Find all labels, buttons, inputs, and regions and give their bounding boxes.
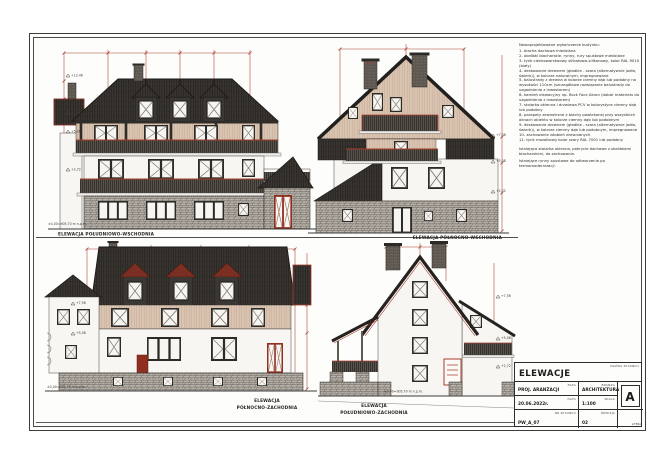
title-block: NAZWA RYSUNKU ELEWACJE FAZA PROJ. ARANŻA…	[514, 362, 642, 427]
finish-notes: Nowoprojektowane wykończenie budynku: 1-…	[519, 43, 641, 169]
date-cell: DATA 20.06.2022r.	[515, 396, 579, 410]
scale-cell: SKALA 1:100	[579, 396, 618, 410]
discipline-cell: BRANŻA ARCHITEKTURA	[579, 382, 618, 396]
nw-dormers	[120, 263, 242, 305]
se-middle-floor	[77, 156, 271, 196]
elevation-nw-label-line1: ELEWACJA	[254, 398, 280, 404]
level-text: +7,56	[76, 301, 86, 305]
ground-level-text: ±0,00=905,70 m n.p.m.	[47, 385, 86, 389]
letter-badge: A	[621, 385, 640, 407]
elevation-nw-drawing: +7,56 +5,08 ±0,00=905,70 m n.p.m. ELEWAC…	[43, 241, 319, 419]
elevation-sw-drawing: +7,56 +5,08 +2,72 ±0,00=905,70 m n.p.m. …	[316, 241, 518, 423]
letter-box-cell: A	[618, 382, 643, 410]
level-text: +5,08	[501, 336, 511, 340]
level-text: +7,56	[501, 294, 511, 298]
notes-footer: Istniejąca stolarka okienna, pokrycie da…	[519, 147, 641, 169]
drawing-name-label: NAZWA RYSUNKU	[610, 364, 639, 368]
note-footer-item: Istniejące rynny spustowe do odtworzenia…	[519, 159, 641, 169]
elevation-se-label: ELEWACJA POŁUDNIOWO-WSCHODNIA	[58, 232, 155, 238]
se-annex	[258, 157, 313, 229]
ne-stone-base	[316, 201, 498, 233]
level-text: +2,72	[501, 364, 511, 368]
level-text: +2,72	[71, 168, 81, 172]
note-item: 11- tynk mozaikowy kolor szary RAL 7001 …	[519, 138, 641, 143]
level-text: +7,56	[496, 133, 506, 137]
level-text: +5,08	[496, 159, 506, 163]
nw-wood-band	[95, 305, 291, 329]
level-text: +2,72	[496, 189, 506, 193]
elevation-ne-label: ELEWACJA PÓŁNOCNO-WSCHODNIA	[413, 234, 503, 241]
level-text: +5,08	[71, 130, 81, 134]
elevation-ne-drawing: +7,56 +5,08 +2,72 ELEWACJA PÓŁNOCNO-WSCH…	[306, 41, 511, 241]
nw-left-annex	[45, 275, 101, 373]
drawing-number-cell: NR RYSUNKU PW_A_07	[515, 410, 579, 428]
level-text: +5,08	[76, 331, 86, 335]
sw-gable	[362, 257, 478, 396]
ground-level-text: ±0,00=905,70 m n.p.m.	[48, 222, 87, 226]
se-dormers	[132, 80, 228, 121]
drawing-title: ELEWACJE	[519, 369, 571, 379]
drawing-sheet: +12,46 +7,56 +5,08 +2,72 ±0,00=905,70 m …	[29, 33, 646, 431]
title-block-name-cell: NAZWA RYSUNKU ELEWACJE	[515, 363, 641, 382]
nw-stone-strip	[59, 373, 303, 391]
note-footer-item: Istniejąca stolarka okienna, pokrycie da…	[519, 147, 641, 157]
elevation-nw-label-line2: PÓŁNOCNO-ZACHODNIA	[237, 404, 298, 411]
elevation-se-drawing: +12,46 +7,56 +5,08 +2,72 ±0,00=905,70 m …	[46, 41, 318, 237]
se-stone-floor	[84, 196, 264, 229]
ne-gable	[318, 57, 494, 139]
se-wood-floor	[73, 121, 281, 156]
level-text: +12,46	[71, 74, 83, 78]
note-item: 5- balustrady z drewna w kolorze ciemny …	[519, 78, 641, 93]
elevation-sw-label-line2: POŁUDNIOWO-ZACHODNIA	[340, 410, 408, 416]
letter-label-cell: LITERA	[618, 410, 643, 428]
nw-main-wall	[95, 329, 291, 373]
se-left-chimney	[68, 83, 76, 99]
level-text: +7,56	[71, 111, 81, 115]
sw-terrain-line	[318, 401, 514, 408]
ground-level-text: ±0,00=905,70 m n.p.m.	[384, 390, 423, 394]
revision-cell: REWIZJA 02	[579, 410, 618, 428]
phase-cell: FAZA PROJ. ARANŻACJI	[515, 382, 579, 396]
elevation-sw-label-line1: ELEWACJA	[361, 403, 387, 409]
